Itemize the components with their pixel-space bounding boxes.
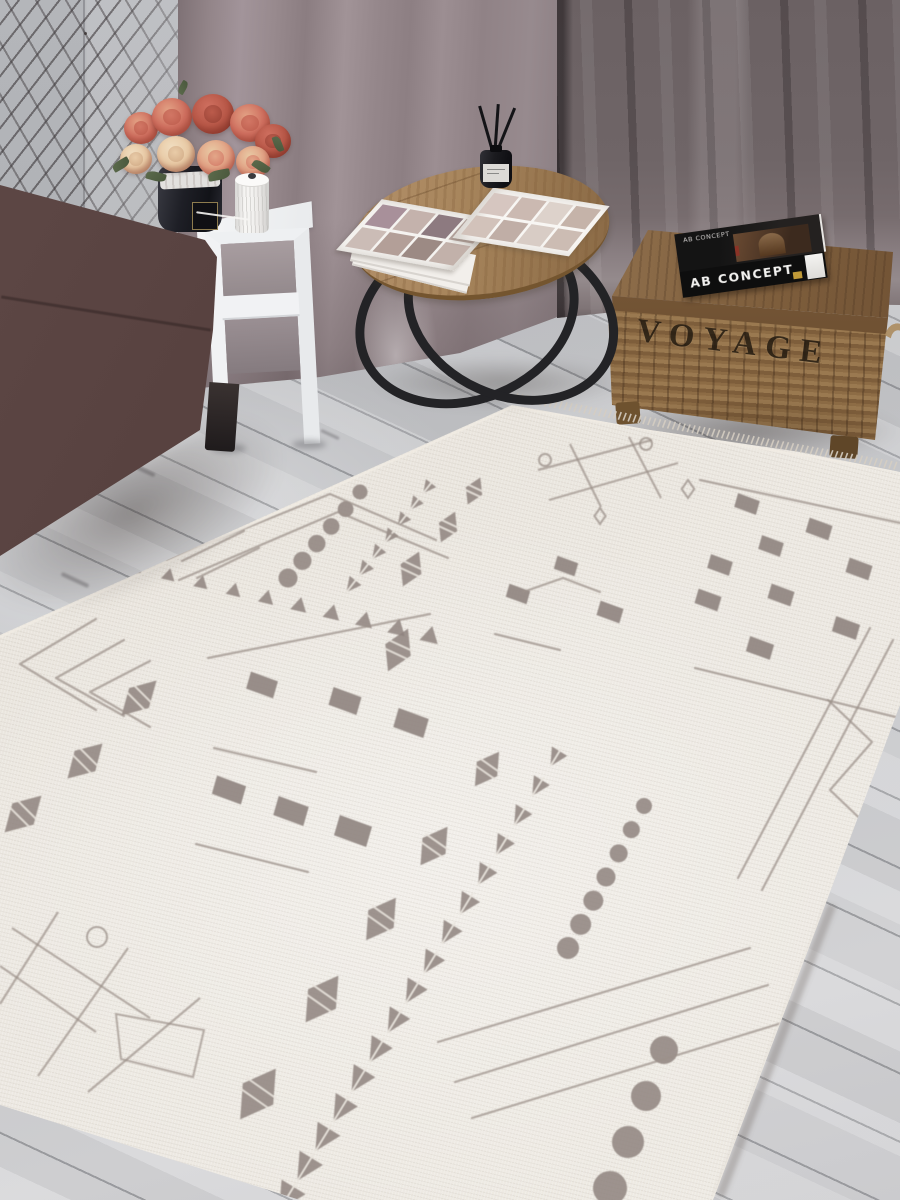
- book-cover-arch: [757, 231, 786, 256]
- diffuser-bottle: [480, 150, 512, 188]
- diffuser-label: [483, 164, 509, 182]
- table-leg-shadow: [292, 440, 326, 449]
- book-pages-edge: [804, 253, 825, 279]
- vase-label: [192, 202, 218, 230]
- trunk-foot: [829, 435, 858, 459]
- spool-top: [235, 173, 269, 187]
- rose-bloom: [152, 98, 192, 136]
- living-room-photo: VOYAGE AB CONCEPT AB CONCEPT: [0, 0, 900, 1200]
- diffuser-cap: [490, 145, 502, 152]
- side-table-upper-shelf-space: [221, 240, 297, 296]
- rose-bloom: [192, 94, 234, 134]
- sofa-leg: [205, 382, 240, 452]
- book-gold-sticker: [793, 271, 803, 279]
- book-cover-title: AB CONCEPT: [683, 230, 731, 244]
- spool-hole: [248, 173, 256, 179]
- open-catalog: [350, 184, 606, 296]
- book-cover-accent: [734, 246, 739, 256]
- rose-bloom: [157, 136, 195, 172]
- trunk-foot: [615, 401, 640, 425]
- thread-spool: [235, 176, 269, 233]
- side-table-lower-shelf-space: [225, 316, 301, 374]
